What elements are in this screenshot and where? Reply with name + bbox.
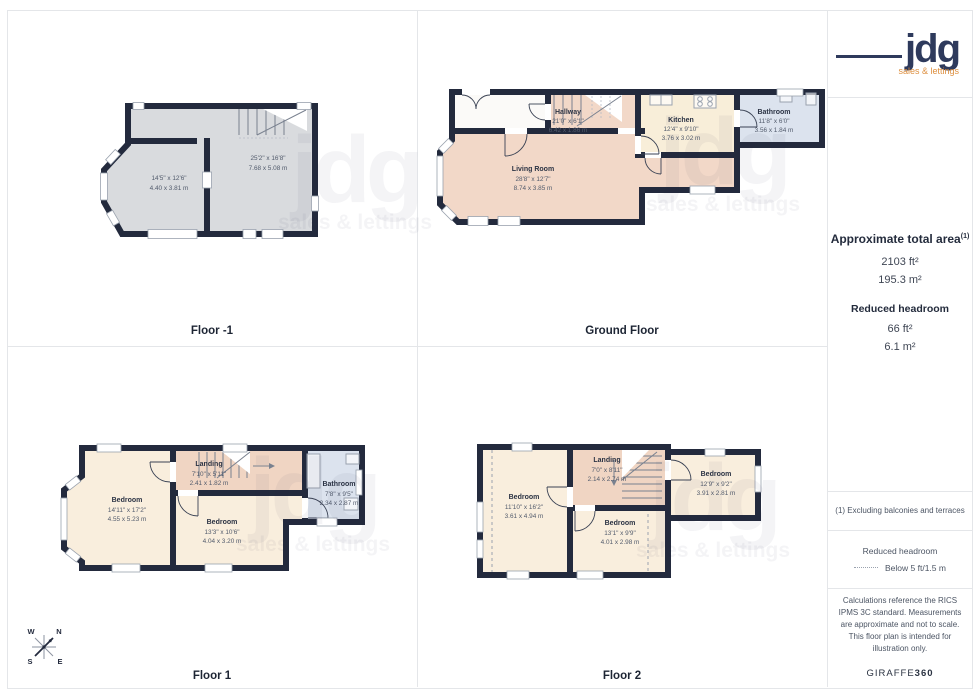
floor-plan-sheet: 14'5" x 12'6" 4.40 x 3.81 m 25'2" x 16'8…: [0, 0, 980, 693]
title-floor-2: Floor 2: [417, 670, 827, 682]
room-name: Bedroom: [207, 519, 238, 526]
room-dim-imperial: 7'10" x 5'11": [192, 471, 227, 478]
room-dim-metric: 4.40 x 3.81 m: [150, 185, 189, 192]
room-label-bathroom-ground: Bathroom 11'8" x 6'0" 3.56 x 1.84 m: [755, 109, 794, 134]
room-name: Hallway: [555, 109, 581, 116]
room-name: Bedroom: [112, 497, 143, 504]
porch-fill: [452, 92, 548, 134]
room-dim-imperial: 13'3" x 10'6": [204, 529, 239, 536]
room-dim-metric: 4.04 x 3.20 m: [203, 538, 242, 545]
room-dim-imperial: 7'8" x 9'5": [325, 491, 353, 498]
room-dim-imperial: 14'5" x 12'6": [151, 175, 186, 182]
compass-label-e: E: [57, 657, 62, 666]
floor-plan-2: Bedroom 11'10" x 16'2" 3.61 x 4.94 m Lan…: [417, 346, 827, 687]
compass-label-n: N: [56, 627, 61, 636]
footnote-text: (1) Excluding balconies and terraces: [828, 492, 972, 531]
room-dim-metric: 3.91 x 2.81 m: [697, 490, 736, 497]
room-dim-metric: 3.61 x 4.94 m: [505, 513, 544, 520]
floor-plan-ground: Hallway 21'0" x 6'1" 6.42 x 1.86 m Livin…: [417, 10, 827, 346]
room-label-landing-f1: Landing 7'10" x 5'11" 2.41 x 1.82 m: [190, 461, 229, 487]
agency-logo: jdg sales & lettings: [828, 10, 972, 98]
room-name: Living Room: [512, 166, 554, 173]
room-dim-imperial: 21'0" x 6'1": [552, 118, 584, 125]
compass-label-s: S: [27, 657, 32, 666]
room-label-bedroom-f1-left: Bedroom 14'11" x 17'2" 4.55 x 5.23 m: [108, 497, 147, 523]
total-area-metric: 195.3 m²: [878, 272, 921, 290]
room-label-bathroom-f1: Bathroom 7'8" x 9'5" 2.34 x 2.87 m: [320, 481, 359, 507]
room-dim-metric: 2.34 x 2.87 m: [320, 500, 359, 507]
floor-plan-minus-1: 14'5" x 12'6" 4.40 x 3.81 m 25'2" x 16'8…: [7, 10, 417, 346]
room-label-bedroom-f2-mid: Bedroom 13'1" x 9'9" 4.01 x 2.98 m: [601, 520, 640, 546]
room-name: Kitchen: [668, 117, 694, 124]
room-label-bedroom-f2-right: Bedroom 12'9" x 9'2" 3.91 x 2.81 m: [697, 471, 736, 497]
compass-star-icon: [32, 635, 56, 659]
room-name: Bedroom: [605, 520, 636, 527]
total-area-section: Approximate total area(1) 2103 ft² 195.3…: [828, 98, 972, 492]
room-dim-imperial: 11'8" x 6'0": [758, 118, 789, 125]
room-dim-metric: 4.55 x 5.23 m: [108, 516, 147, 523]
dotted-line-icon: [854, 567, 878, 568]
room-name: Bedroom: [509, 494, 540, 501]
room-label-landing-f2: Landing 7'0" x 8'11" 2.14 x 2.74 m: [588, 457, 627, 483]
reduced-headroom-legend: Reduced headroom Below 5 ft/1.5 m: [828, 531, 972, 589]
room-dim-imperial: 12'9" x 9'2": [700, 481, 732, 488]
disclaimer-text: Calculations reference the RICS IPMS 3C …: [838, 595, 962, 655]
compass-label-w: W: [27, 627, 35, 636]
room-dim-imperial: 13'1" x 9'9": [604, 530, 636, 537]
room-dim-metric: 2.41 x 1.82 m: [190, 480, 229, 487]
room-dim-metric: 7.68 x 5.08 m: [249, 165, 288, 172]
room-dim-metric: 3.76 x 3.02 m: [662, 135, 701, 142]
room-name: Landing: [593, 457, 620, 464]
info-sidebar: jdg sales & lettings Approximate total a…: [828, 10, 972, 687]
room-name: Landing: [195, 461, 222, 468]
logo-tagline: sales & lettings: [828, 66, 972, 76]
reduced-headroom-imperial: 66 ft²: [887, 321, 912, 339]
room-dim-metric: 8.74 x 3.85 m: [514, 185, 553, 192]
disclaimer-section: Calculations reference the RICS IPMS 3C …: [828, 589, 972, 687]
room-dim-metric: 4.01 x 2.98 m: [601, 539, 640, 546]
room-dim-imperial: 25'2" x 16'8": [250, 155, 285, 162]
title-floor-minus-1: Floor -1: [7, 325, 417, 337]
room-name: Bathroom: [757, 109, 790, 116]
room-label-bedroom-f2-left: Bedroom 11'10" x 16'2" 3.61 x 4.94 m: [505, 494, 544, 520]
logo-text: jdg: [905, 32, 959, 66]
compass-rose: W N S E: [14, 616, 78, 680]
room-label-bedroom-f1-mid: Bedroom 13'3" x 10'6" 4.04 x 3.20 m: [203, 519, 242, 545]
room-dim-imperial: 28'8" x 12'7": [515, 176, 550, 183]
room-dim-metric: 6.42 x 1.86 m: [549, 127, 588, 134]
title-ground-floor: Ground Floor: [417, 325, 827, 337]
reduced-headroom-metric: 6.1 m²: [884, 339, 915, 357]
legend-label: Below 5 ft/1.5 m: [885, 563, 946, 573]
legend-title: Reduced headroom: [863, 546, 938, 556]
room-dim-imperial: 14'11" x 17'2": [108, 507, 146, 514]
total-area-title: Approximate total area(1): [831, 232, 970, 246]
room-dim-imperial: 11'10" x 16'2": [505, 504, 543, 511]
logo-underline: [836, 55, 902, 58]
room-dim-metric: 2.14 x 2.74 m: [588, 476, 627, 483]
room-dim-imperial: 7'0" x 8'11": [591, 467, 622, 474]
room-label-living-room: Living Room 28'8" x 12'7" 8.74 x 3.85 m: [512, 166, 554, 192]
total-area-imperial: 2103 ft²: [881, 254, 918, 272]
room-dim-metric: 3.56 x 1.84 m: [755, 127, 794, 134]
reduced-headroom-title: Reduced headroom: [851, 303, 949, 315]
room-name: Bathroom: [322, 481, 355, 488]
room-dim-imperial: 12'4" x 9'10": [663, 126, 698, 133]
room-name: Bedroom: [701, 471, 732, 478]
provider-brand: GIRAFFE360: [866, 667, 933, 681]
footnote-marker: (1): [961, 233, 970, 240]
